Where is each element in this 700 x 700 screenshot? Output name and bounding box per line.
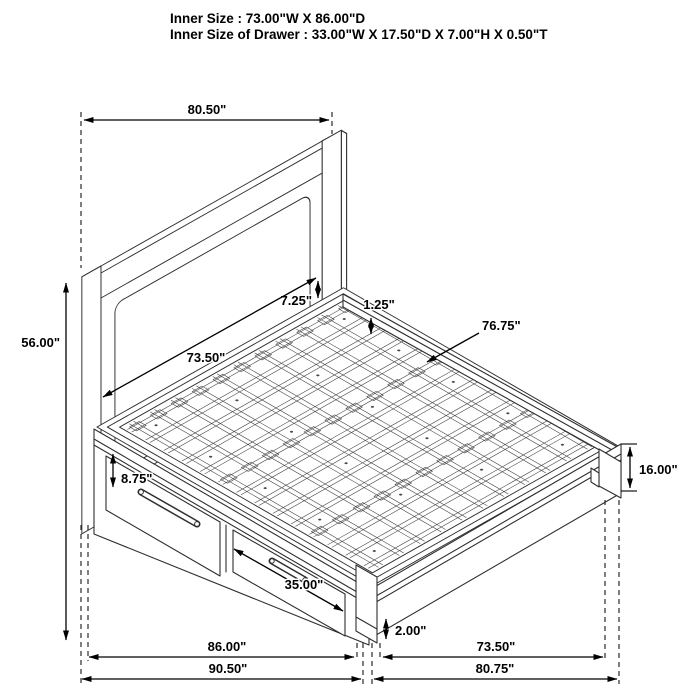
- title-line-1: Inner Size : 73.00"W X 86.00"D: [170, 11, 365, 26]
- dim-drawer-height-label: 8.75": [121, 471, 152, 486]
- dim-headboard-height: 56.00": [21, 283, 66, 640]
- dim-footboard-inner-width-label: 73.50": [477, 639, 516, 654]
- title-line-2: Inner Size of Drawer : 33.00"W X 17.50"D…: [170, 27, 548, 42]
- dim-footboard-height-label: 16.00": [639, 462, 678, 477]
- dim-headboard-height-label: 56.00": [21, 335, 60, 350]
- dim-slat-thickness-label: 1.25": [363, 297, 394, 312]
- dim-footboard-inner-width: 73.50": [383, 639, 603, 657]
- bed-dimension-diagram: Inner Size : 73.00"W X 86.00"D Inner Siz…: [0, 0, 700, 700]
- dim-headboard-width: 80.50": [84, 102, 329, 120]
- headboard-right-post-side: [341, 131, 346, 304]
- dim-overall-depth: 90.50": [82, 661, 361, 679]
- dim-inner-width-label: 73.50": [187, 350, 226, 365]
- corner-post-near: [356, 565, 377, 643]
- dim-inner-depth-label: 86.00": [208, 639, 247, 654]
- dim-side-rail-length-label: 76.75": [482, 318, 521, 333]
- headboard-right-post: [322, 130, 341, 313]
- dim-headboard-width-label: 80.50": [188, 102, 227, 117]
- title-block: Inner Size : 73.00"W X 86.00"D Inner Siz…: [170, 11, 548, 42]
- dim-inner-depth: 86.00": [89, 639, 354, 657]
- dim-foot-clearance-label: 2.00": [395, 623, 426, 638]
- dim-footboard-overall-width-label: 80.75": [476, 661, 515, 676]
- dim-footboard-overall-width: 80.75": [374, 661, 617, 679]
- dim-footboard-height: 16.00": [621, 444, 678, 491]
- dim-drawer-width-label: 35.00": [285, 577, 324, 592]
- dim-overall-depth-label: 90.50": [209, 661, 248, 676]
- diagram-canvas: Inner Size : 73.00"W X 86.00"D Inner Siz…: [0, 0, 700, 700]
